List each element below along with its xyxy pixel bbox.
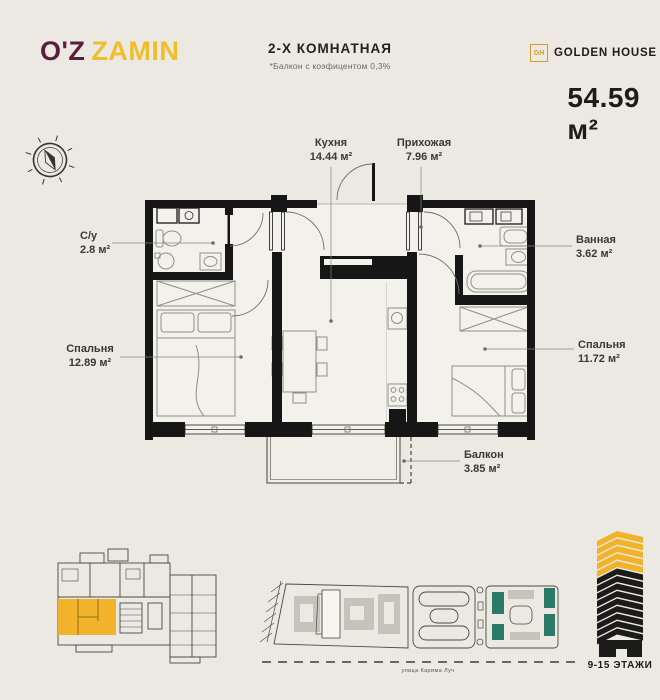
building-floors-icon bbox=[597, 531, 643, 657]
site-buildings-gray bbox=[294, 594, 400, 634]
apartment-floor bbox=[150, 204, 532, 483]
room-name: Спальня bbox=[66, 342, 114, 356]
floor-plan-page: O'ZZAMIN 2-Х КОМНАТНАЯ *Балкон с коэфице… bbox=[0, 0, 660, 700]
compass-icon bbox=[16, 126, 84, 194]
room-label-bathroom: Ванная 3.62 м² bbox=[576, 233, 616, 262]
entrance-door-leaf bbox=[372, 163, 375, 201]
entrance-door-arc bbox=[337, 164, 373, 200]
room-area: 11.72 м² bbox=[578, 352, 626, 366]
site-mid-block bbox=[413, 586, 475, 648]
site-plan bbox=[260, 581, 576, 662]
key-plan-stairs bbox=[120, 603, 142, 633]
room-area: 3.85 м² bbox=[464, 462, 504, 476]
site-right-block bbox=[486, 586, 558, 648]
room-area: 7.96 м² bbox=[397, 150, 451, 164]
room-label-bedroom-left: Спальня 12.89 м² bbox=[66, 342, 114, 371]
kitchen-appliance bbox=[389, 409, 406, 422]
key-plan-highlighted-unit bbox=[58, 599, 116, 635]
room-area: 3.62 м² bbox=[576, 247, 616, 261]
room-name: Балкон bbox=[464, 448, 504, 462]
room-name: С/у bbox=[80, 229, 110, 243]
floor-key-plan bbox=[58, 549, 216, 663]
room-name: Спальня bbox=[578, 338, 626, 352]
room-label-balcony: Балкон 3.85 м² bbox=[464, 448, 504, 477]
window-bedroom-right bbox=[438, 425, 498, 434]
room-label-wc: С/у 2.8 м² bbox=[80, 229, 110, 258]
room-label-bedroom-right: Спальня 11.72 м² bbox=[578, 338, 626, 367]
room-name: Ванная bbox=[576, 233, 616, 247]
room-area: 14.44 м² bbox=[310, 150, 352, 164]
windows-layer bbox=[185, 425, 498, 434]
room-name: Прихожая bbox=[397, 136, 451, 150]
room-label-kitchen: Кухня 14.44 м² bbox=[310, 136, 352, 165]
window-bedroom-left bbox=[185, 425, 245, 434]
room-area: 2.8 м² bbox=[80, 243, 110, 257]
floors-range-label: 9-15 ЭТАЖИ bbox=[575, 660, 660, 671]
room-label-hallway: Прихожая 7.96 м² bbox=[397, 136, 451, 165]
street-label: улица Карима Луч bbox=[401, 668, 454, 674]
room-area: 12.89 м² bbox=[66, 356, 114, 370]
room-name: Кухня bbox=[310, 136, 352, 150]
window-balcony-door bbox=[312, 425, 385, 434]
